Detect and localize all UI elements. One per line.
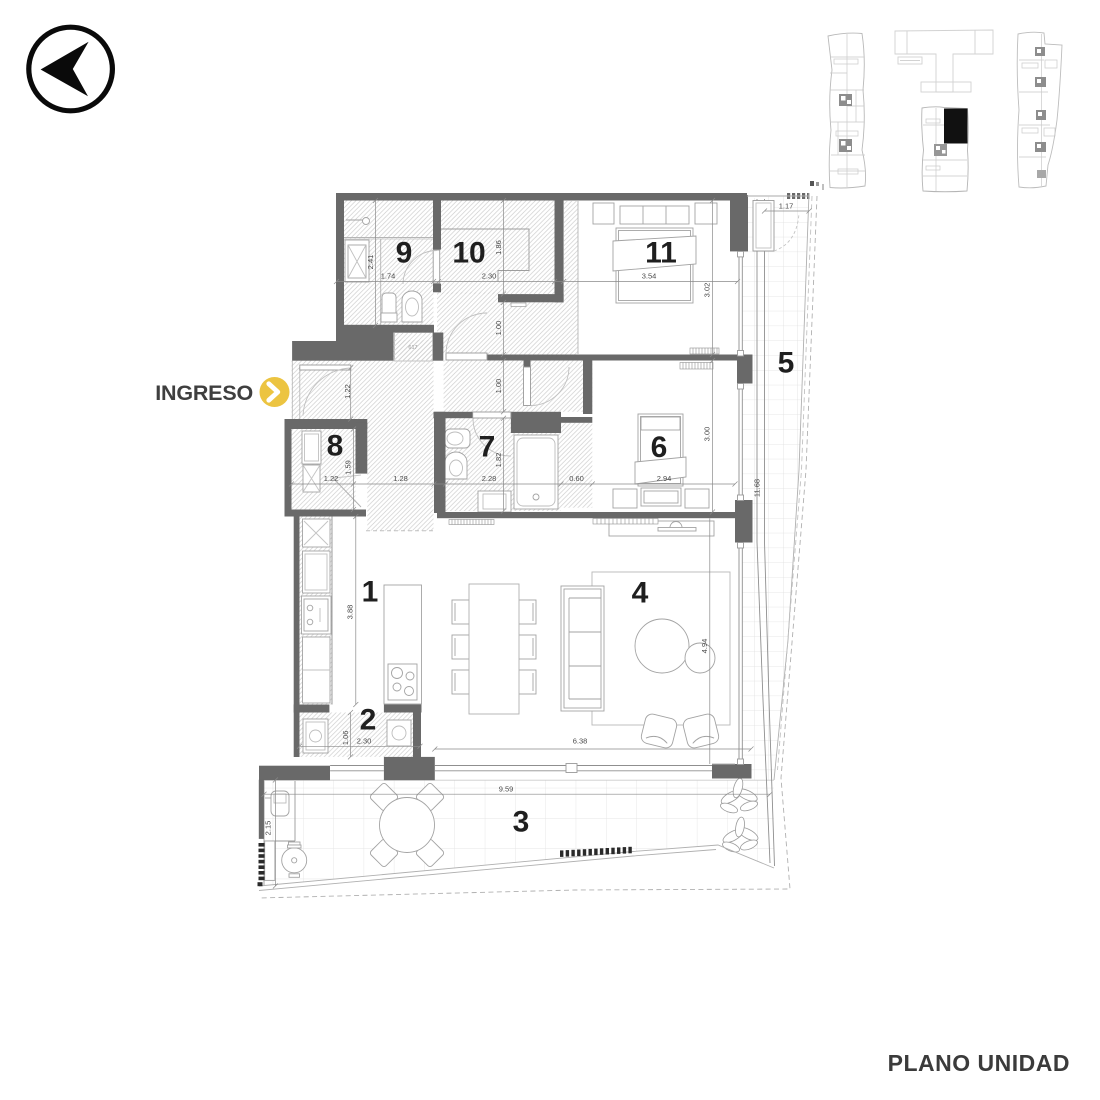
svg-text:2.30: 2.30: [357, 737, 372, 746]
svg-text:6.38: 6.38: [573, 737, 588, 746]
svg-text:3.00: 3.00: [703, 427, 712, 442]
svg-text:3.54: 3.54: [642, 272, 657, 281]
svg-text:2.30: 2.30: [482, 272, 497, 281]
svg-text:9: 9: [396, 237, 413, 270]
svg-text:3.88: 3.88: [346, 605, 355, 620]
svg-text:3: 3: [513, 806, 530, 839]
svg-text:8: 8: [327, 430, 344, 463]
svg-text:1: 1: [362, 576, 379, 609]
svg-text:0.60: 0.60: [569, 474, 584, 483]
svg-text:1.28: 1.28: [393, 474, 408, 483]
svg-text:1.59: 1.59: [344, 460, 353, 475]
svg-text:1.86: 1.86: [494, 240, 503, 255]
svg-text:2.15: 2.15: [264, 821, 273, 836]
svg-text:1.06: 1.06: [341, 730, 350, 745]
svg-text:10: 10: [452, 237, 485, 270]
svg-text:5: 5: [778, 347, 795, 380]
svg-text:11: 11: [645, 237, 677, 270]
svg-text:2.28: 2.28: [482, 474, 497, 483]
svg-text:1.22: 1.22: [324, 474, 339, 483]
svg-text:4: 4: [632, 577, 649, 610]
svg-text:1.00: 1.00: [494, 321, 503, 336]
svg-text:2.94: 2.94: [657, 474, 672, 483]
svg-text:9.59: 9.59: [499, 785, 514, 794]
svg-text:2: 2: [360, 704, 377, 737]
svg-text:1.00: 1.00: [494, 379, 503, 394]
svg-text:1.74: 1.74: [381, 272, 396, 281]
svg-text:PLANO UNIDAD: PLANO UNIDAD: [888, 1050, 1070, 1076]
svg-text:6: 6: [651, 431, 668, 464]
svg-text:3.02: 3.02: [703, 283, 712, 298]
svg-text:1.17: 1.17: [779, 202, 794, 211]
svg-text:1.82: 1.82: [494, 453, 503, 468]
svg-text:617: 617: [408, 345, 417, 351]
svg-text:INGRESO: INGRESO: [155, 381, 253, 405]
svg-text:1.22: 1.22: [343, 384, 352, 399]
svg-text:4.94: 4.94: [700, 639, 709, 654]
svg-text:2.41: 2.41: [366, 255, 375, 270]
svg-text:11.68: 11.68: [753, 479, 762, 497]
svg-text:7: 7: [479, 431, 496, 464]
